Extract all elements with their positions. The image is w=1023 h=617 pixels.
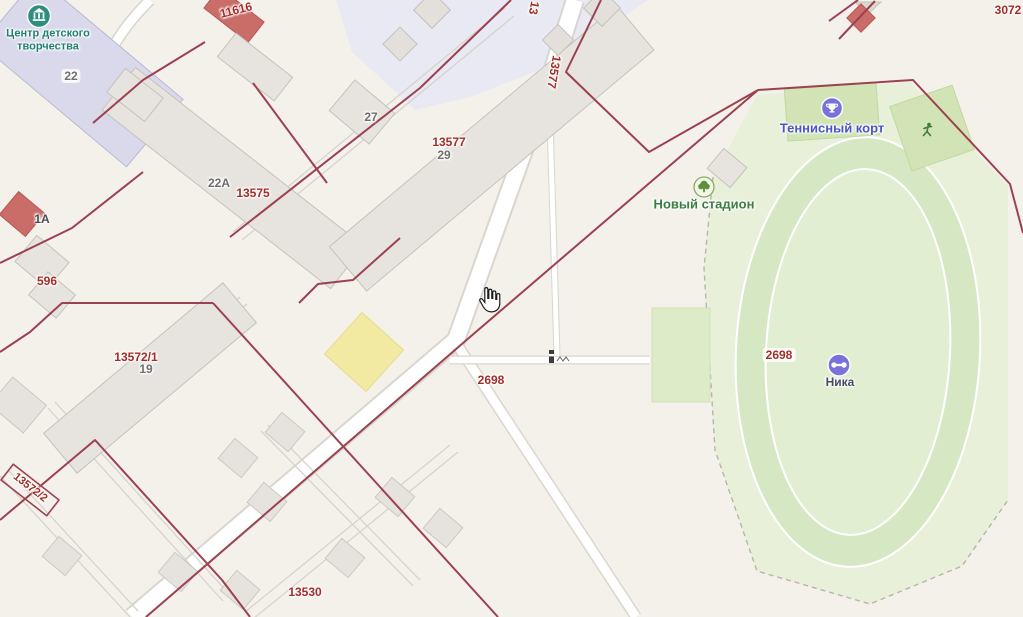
parcel-label-2698-stadium: 2698	[763, 348, 796, 362]
cursor-hand-icon	[476, 286, 502, 314]
parcel-label-596: 596	[37, 275, 57, 287]
parcel-label-13-top: 13	[527, 0, 541, 15]
yellow-parcel	[324, 312, 403, 391]
trophy-icon[interactable]	[822, 98, 843, 119]
map-canvas[interactable]	[0, 0, 1023, 617]
children-center-icon[interactable]	[28, 5, 51, 28]
tennis-court-label[interactable]: Теннисный корт	[780, 122, 884, 135]
children-center-label-line2[interactable]: творчества	[17, 42, 79, 53]
house-number-29: 29	[437, 149, 450, 161]
house-number-22: 22	[61, 69, 80, 83]
tree-icon[interactable]	[694, 177, 714, 197]
side-field-area	[652, 308, 710, 402]
parcel-label-13577: 13577	[432, 136, 465, 148]
parcel-label-3072: 3072	[995, 4, 1022, 16]
gym-icon[interactable]	[828, 354, 850, 376]
parcel-label-13575: 13575	[236, 187, 269, 199]
house-number-22a: 22А	[208, 177, 230, 189]
house-number-1a: 1А	[34, 213, 49, 225]
children-center-label-line1[interactable]: Центр детского	[6, 29, 90, 40]
house-number-27: 27	[364, 111, 377, 123]
building-19	[44, 283, 257, 473]
stadium-label[interactable]: Новый стадион	[654, 198, 755, 211]
gym-label[interactable]: Ника	[826, 376, 855, 388]
parcel-label-2698-road: 2698	[478, 374, 505, 386]
house-number-19: 19	[139, 363, 152, 375]
map-viewport[interactable]: Центр детского творчества 22 11616 27 13…	[0, 0, 1023, 617]
parcel-label-13530: 13530	[288, 586, 321, 598]
